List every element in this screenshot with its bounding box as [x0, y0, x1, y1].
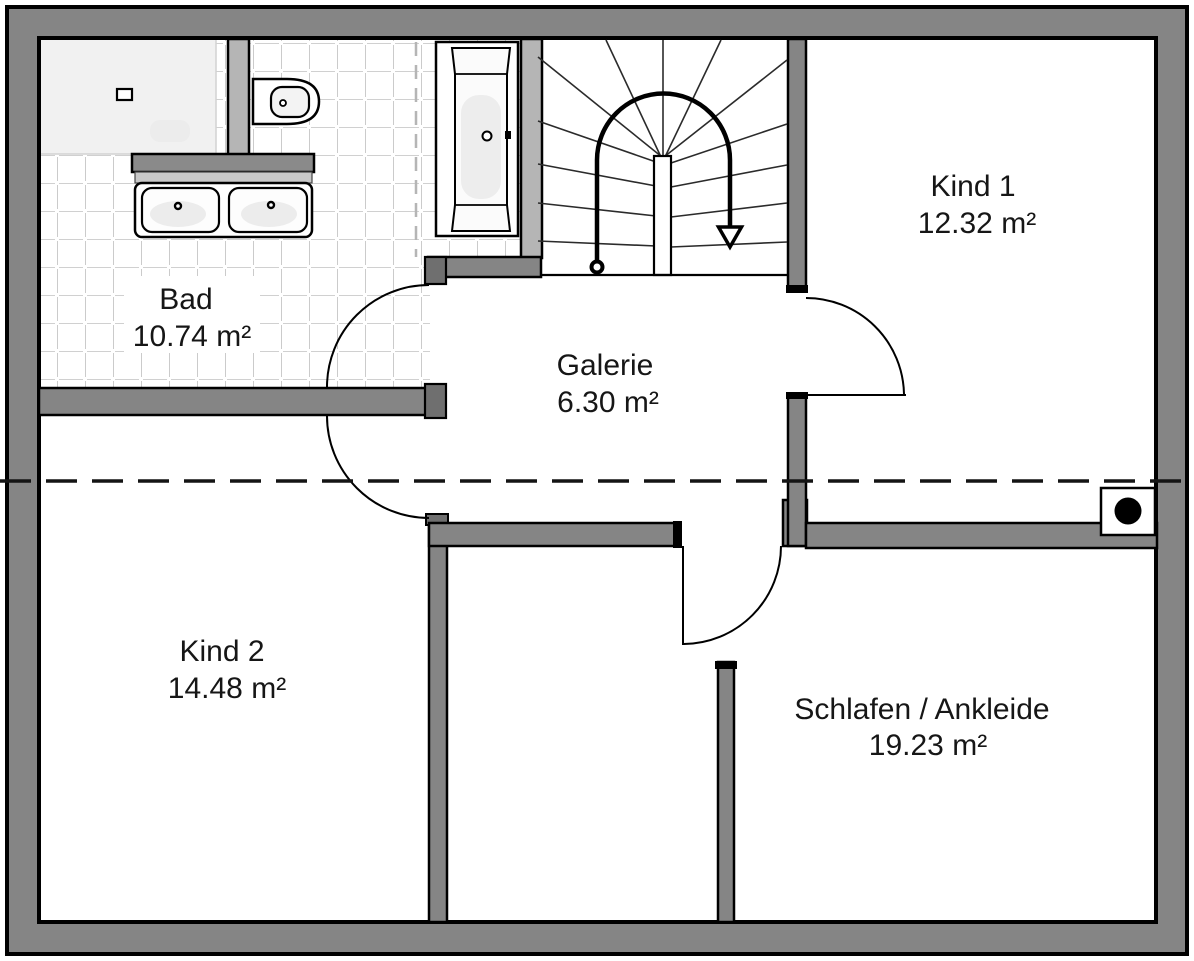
door-jamb-bad [425, 257, 446, 284]
wall-cap-ankleide-door [673, 521, 682, 548]
wall-shower-divider [228, 39, 249, 156]
wall-galerie-ankleide [429, 523, 679, 546]
bathtub [436, 42, 518, 236]
door-jamb-kind2 [425, 384, 446, 418]
room-area-kind2: 14.48 m² [168, 672, 286, 705]
room-label-bad: Bad [159, 283, 212, 316]
wall-bathtub-stairwell [521, 39, 542, 258]
wall-bad-kind2 [39, 388, 430, 415]
floor-plan-drawing: Bad 10.74 m² Kind 1 12.32 m² Galerie 6.3… [0, 0, 1194, 961]
wall-vanity-back [132, 154, 314, 172]
room-area-galerie: 6.30 m² [557, 386, 659, 419]
basin-left-tap-icon [175, 203, 181, 209]
vanity-counter-edge [135, 172, 312, 183]
room-label-kind1: Kind 1 [930, 170, 1015, 203]
wall-galerie-kind1 [788, 394, 806, 546]
basin-right-tap-icon [268, 202, 274, 208]
chimney-icon [1101, 488, 1155, 535]
floor-plan-page: Bad 10.74 m² Kind 1 12.32 m² Galerie 6.3… [0, 0, 1194, 961]
toilet [253, 79, 319, 124]
wall-cap-kind1-door-bottom [786, 392, 808, 399]
room-area-schlafen: 19.23 m² [869, 729, 987, 762]
room-area-kind1: 12.32 m² [918, 207, 1036, 240]
room-label-schlafen: Schlafen / Ankleide [794, 693, 1049, 726]
wall-cap-kind1-door-top [786, 285, 808, 293]
bathtub-tap-icon [505, 131, 511, 139]
stair-spine [654, 156, 671, 275]
wall-stair-kind1 [788, 39, 806, 291]
room-label-kind2: Kind 2 [179, 635, 264, 668]
shower-drain-icon [117, 89, 132, 100]
bathtub-shading [461, 95, 501, 199]
room-area-bad: 10.74 m² [133, 320, 251, 353]
wall-kind2-ankleide [429, 516, 447, 922]
wall-cap-ankleide-schlafen [715, 661, 737, 669]
room-label-galerie: Galerie [557, 349, 654, 382]
wall-ankleide-schlafen [718, 662, 734, 922]
double-washbasin [135, 172, 312, 237]
toilet-drain-icon [280, 100, 286, 106]
shower-shading [150, 120, 190, 142]
bathtub-drain-icon [483, 132, 492, 141]
shower-tray [40, 39, 216, 154]
